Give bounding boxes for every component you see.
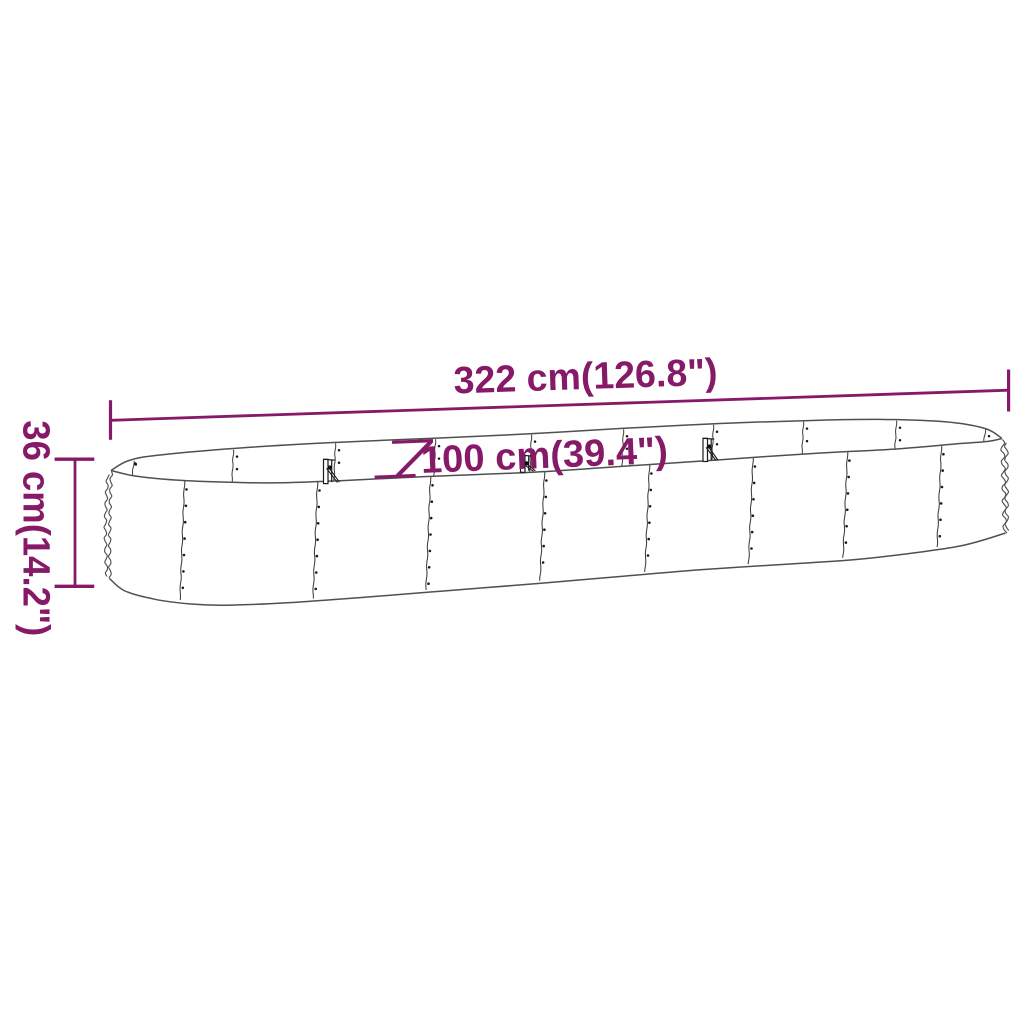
svg-text:36 cm(14.2"): 36 cm(14.2") xyxy=(15,420,57,636)
svg-text:322 cm(126.8"): 322 cm(126.8") xyxy=(453,352,718,403)
